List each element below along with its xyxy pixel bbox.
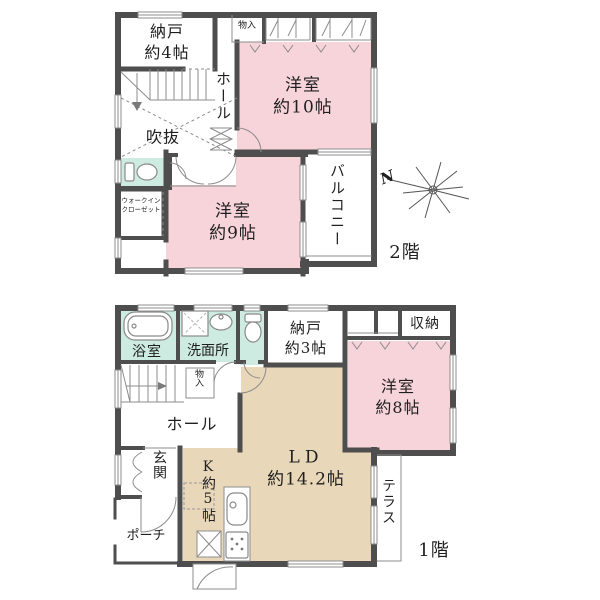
ld-line1: LD (267, 447, 345, 469)
nando-2f-line2: 約4帖 (144, 42, 189, 63)
bathtub-icon (124, 312, 172, 340)
room9-line1: 洋室 (209, 201, 257, 223)
room-label-nando-1f: 納戸 約3帖 (285, 319, 328, 359)
room-label-balcony: バルコニー (329, 163, 344, 248)
room-label-hall-1f: ホール (166, 413, 217, 434)
room-label-monoire-1f: 物入 (193, 369, 202, 387)
room-label-nando-2f: 納戸 約4帖 (144, 21, 189, 63)
room-label-monoire-2f: 物入 (238, 21, 256, 33)
room-label-ld: LD 約14.2帖 (267, 447, 345, 492)
room-label-genkan: 玄関 (152, 450, 166, 480)
room-label-washroom: 洗面所 (187, 342, 229, 360)
wic-line2: クローゼット (122, 205, 161, 214)
sink-basin-icon (210, 314, 232, 330)
room-label-room9: 洋室 約9帖 (209, 201, 257, 246)
room10-line1: 洋室 (273, 75, 333, 97)
room10-line2: 約10帖 (273, 97, 333, 119)
washing-machine-icon (182, 311, 208, 336)
toilet-2f-icon (125, 163, 157, 181)
floor1-label: 1階 (418, 539, 449, 563)
room-label-terrace: テラス (381, 478, 395, 526)
ld-line2: 約14.2帖 (267, 469, 345, 491)
room9-line2: 約9帖 (209, 223, 257, 245)
room8-line2: 約8帖 (375, 397, 420, 418)
nando-2f-line1: 納戸 (144, 21, 189, 42)
room8-line1: 洋室 (375, 376, 420, 397)
nando-1f-line1: 納戸 (285, 319, 328, 339)
room-label-kitchen: K約5帖 (201, 459, 215, 523)
wic-line1: ウォークイン (122, 196, 161, 205)
toilet-1f-icon (245, 314, 261, 342)
room-label-fukinuke: 吹抜 (146, 126, 180, 147)
room-label-hall-2f: ホール (215, 71, 230, 122)
room-label-room10: 洋室 約10帖 (273, 75, 333, 120)
nando-1f-line2: 約3帖 (285, 339, 328, 359)
room-label-shuno: 収納 (410, 315, 440, 333)
room-label-bath: 浴室 (132, 343, 162, 361)
compass-icon (387, 162, 469, 218)
room-label-porch: ポーチ (126, 527, 165, 544)
room-label-room8: 洋室 約8帖 (375, 376, 420, 418)
floor-plan-canvas: 納戸 約4帖 物入 洋室 約10帖 ホール 吹抜 洋室 約9帖 バルコニー ウォ… (0, 0, 600, 600)
floor2-label: 2階 (389, 241, 420, 265)
room-label-wic: ウォークイン クローゼット (122, 196, 161, 213)
